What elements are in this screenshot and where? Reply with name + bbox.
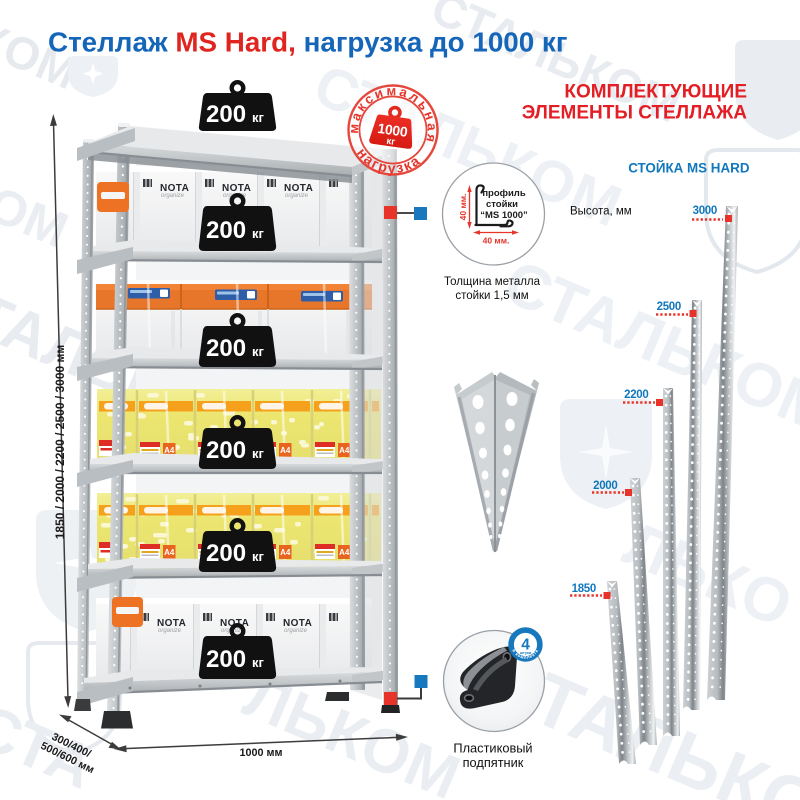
svg-text:СТОЙКА MS HARD: СТОЙКА MS HARD [628, 161, 750, 176]
svg-text:кг: кг [252, 446, 265, 461]
svg-text:2000: 2000 [593, 480, 617, 492]
svg-text:1850 / 2000 / 2200 / 2500 / 30: 1850 / 2000 / 2200 / 2500 / 3000 мм [53, 345, 67, 540]
svg-text:Стеллаж MS Hard, нагрузка до 1: Стеллаж MS Hard, нагрузка до 1000 кг [48, 27, 567, 58]
svg-text:2200: 2200 [624, 389, 648, 401]
svg-text:1850: 1850 [572, 583, 596, 595]
svg-text:2500: 2500 [657, 301, 681, 313]
svg-text:стойки: стойки [486, 199, 518, 210]
svg-text:стойки 1,5 мм: стойки 1,5 мм [455, 290, 528, 302]
svg-text:кг: кг [386, 136, 396, 148]
svg-text:40 мм.: 40 мм. [483, 236, 510, 246]
svg-text:organize: organize [158, 628, 182, 634]
svg-text:40 мм.: 40 мм. [458, 194, 468, 221]
svg-text:3000: 3000 [693, 205, 717, 217]
svg-text:organize: organize [284, 628, 308, 634]
svg-text:Высота, мм: Высота, мм [570, 206, 632, 218]
svg-text:A4: A4 [280, 548, 291, 557]
svg-text:200: 200 [206, 540, 246, 567]
svg-text:профиль: профиль [482, 188, 526, 199]
svg-text:organize: organize [285, 193, 309, 199]
svg-text:200: 200 [206, 217, 246, 244]
svg-text:кг: кг [252, 655, 265, 670]
svg-text:A4: A4 [280, 446, 291, 455]
svg-text:A4: A4 [339, 548, 350, 557]
svg-text:200: 200 [206, 437, 246, 464]
svg-text:ЭЛЕМЕНТЫ СТЕЛЛАЖА: ЭЛЕМЕНТЫ СТЕЛЛАЖА [522, 103, 748, 124]
svg-text:A4: A4 [339, 446, 350, 455]
svg-text:кг: кг [252, 226, 265, 241]
svg-text:1000 мм: 1000 мм [240, 747, 283, 759]
svg-text:200: 200 [206, 101, 246, 128]
svg-text:подпятник: подпятник [463, 755, 524, 770]
svg-text:“MS 1000”: “MS 1000” [480, 210, 528, 221]
svg-text:A4: A4 [164, 548, 175, 557]
svg-text:A4: A4 [164, 446, 175, 455]
svg-text:200: 200 [206, 335, 246, 362]
svg-text:Пластиковый: Пластиковый [453, 741, 532, 756]
svg-text:кг: кг [252, 344, 265, 359]
svg-text:organize: organize [161, 193, 185, 199]
svg-text:кг: кг [252, 110, 265, 125]
svg-text:КОМПЛЕКТУЮЩИЕ: КОМПЛЕКТУЮЩИЕ [564, 82, 747, 103]
svg-text:Толщина металла: Толщина металла [444, 276, 541, 288]
svg-text:кг: кг [252, 549, 265, 564]
svg-text:200: 200 [206, 646, 246, 673]
